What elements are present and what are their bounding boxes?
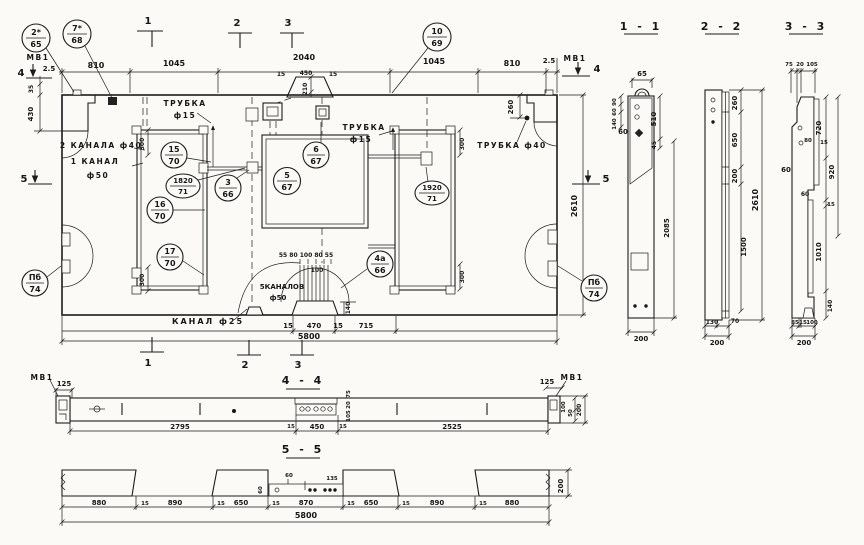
svg-text:71: 71	[427, 195, 437, 203]
svg-text:74: 74	[29, 285, 41, 294]
dim-15-a: 15	[277, 71, 285, 78]
svg-text:2*: 2*	[31, 28, 42, 37]
mark-left-5: 5	[21, 174, 28, 185]
s11-dim-140: 140	[612, 118, 618, 130]
dim-15-b: 15	[329, 71, 337, 78]
s55-dim-60: 60	[285, 473, 293, 479]
balloon-5-67: 5 67	[274, 168, 301, 195]
svg-text:17: 17	[164, 247, 175, 256]
s55-dim-880b: 880	[505, 499, 520, 507]
s22-dim-260: 260	[731, 96, 739, 111]
s44-dim-20: 20	[346, 401, 352, 409]
s55-dim-650b: 650	[364, 499, 379, 507]
trubka40-label: ТРУБКА ф40	[477, 141, 547, 150]
plan-view: 810 1045 2040 1045 810 2.5 2.5 450 15 15…	[18, 16, 610, 371]
svg-text:69: 69	[431, 39, 443, 48]
s44-dim-125l: 125	[57, 380, 72, 388]
s33-dim-920: 920	[828, 165, 836, 180]
s55-dim-15a: 15	[141, 501, 149, 507]
dim-140: 140	[345, 302, 352, 315]
mark-top-1: 1	[145, 16, 152, 27]
balloon-17-70: 17 70	[157, 244, 183, 270]
section-2-2: 2 - 2 260 650 200 1500 2610 130 70 200	[701, 20, 765, 347]
svg-text:74: 74	[588, 290, 600, 299]
mark-bot-1: 1	[145, 358, 152, 369]
section-3-3-title: 3 - 3	[785, 20, 828, 33]
section-4-4-body	[70, 398, 548, 421]
balloon-6-67: 6 67	[303, 142, 329, 168]
dim-300-b: 300	[139, 274, 146, 287]
kanalov5-label: 5КАНАЛОВ	[260, 283, 304, 291]
mark-bot-2: 2	[242, 360, 249, 371]
svg-text:Пб: Пб	[29, 272, 42, 282]
dim-15-c: 15	[283, 322, 293, 330]
svg-text:3: 3	[225, 178, 231, 187]
svg-text:1820: 1820	[173, 177, 193, 185]
s55-dim-60v: 60	[258, 486, 264, 494]
svg-text:Пб: Пб	[588, 277, 601, 287]
balloon-pb-74-right: Пб 74	[581, 275, 607, 301]
s44-dim-75: 75	[346, 390, 352, 398]
svg-text:65: 65	[30, 40, 42, 49]
mark-right-4: 4	[594, 64, 601, 75]
s55-dim-15d: 15	[347, 501, 355, 507]
svg-text:7*: 7*	[72, 24, 83, 33]
s55-dim-870: 870	[299, 499, 314, 507]
s33-dim-85: 85	[791, 320, 799, 326]
dim-260: 260	[507, 100, 515, 115]
balloon-15-70: 15 70	[161, 142, 187, 168]
dim-2610: 2610	[570, 194, 579, 217]
s44-dim-200: 200	[576, 404, 583, 417]
s11-dim-45: 45	[651, 141, 658, 149]
section-2-2-title: 2 - 2	[701, 20, 744, 33]
kanalov5-dia: ф50	[270, 294, 287, 302]
small-fitting	[108, 97, 117, 105]
s22-dim-200b: 200	[710, 339, 725, 347]
mark-left-4: 4	[18, 68, 25, 79]
section-3-3: 3 - 3 75 20 105 60 60 80 15 720 920 15 1…	[781, 20, 840, 347]
svg-text:71: 71	[178, 188, 188, 196]
svg-text:68: 68	[71, 36, 83, 45]
svg-text:70: 70	[164, 259, 176, 268]
s55-dim-890b: 890	[430, 499, 445, 507]
svg-text:67: 67	[310, 157, 321, 166]
balloon-16-70: 16 70	[147, 197, 173, 223]
section-5-5: 5 - 5 880 15 890 15 650 15 870 15 650 15…	[60, 443, 573, 526]
s44-mv1-right: МВ1	[561, 373, 584, 382]
s33-dim-720: 720	[815, 121, 823, 136]
s22-dim-1500: 1500	[740, 237, 748, 257]
dim-channel-100: 100	[311, 267, 324, 274]
s44-dim-2525: 2525	[442, 423, 462, 431]
dim-450: 450	[300, 70, 313, 77]
kanal1-label: 1 КАНАЛ	[71, 157, 120, 166]
s44-dim-105: 105	[346, 410, 352, 422]
s33-dim-105: 105	[806, 62, 818, 68]
svg-text:66: 66	[374, 266, 386, 275]
s33-dim-15r: 15	[827, 202, 835, 208]
dim-430: 430	[27, 107, 35, 122]
svg-text:1920: 1920	[422, 184, 442, 192]
svg-text:66: 66	[222, 190, 234, 199]
s11-dim-510: 510	[650, 112, 658, 127]
dim-1045-right: 1045	[423, 57, 446, 66]
top-conduit-block	[287, 77, 333, 97]
s44-dim-15b: 15	[339, 424, 347, 430]
s55-dim-15f: 15	[479, 501, 487, 507]
trubka15-mid-dia: ф15	[350, 135, 372, 144]
s33-dim-60b: 60	[801, 191, 809, 198]
s44-mv1-left: МВ1	[31, 373, 54, 382]
s11-dim-65: 65	[637, 70, 647, 78]
section-4-4-title: 4 - 4	[282, 374, 325, 387]
s55-dim-15e: 15	[402, 501, 410, 507]
balloon-10-69: 10 69	[423, 23, 451, 51]
kanal25-label: КАНАЛ ф25	[172, 317, 244, 326]
dim-810-left: 810	[88, 61, 105, 70]
s22-dim-70: 70	[731, 318, 739, 325]
mark-top-2: 2	[234, 18, 241, 29]
trubka15-left-dia: ф15	[174, 111, 196, 120]
s44-dim-50: 50	[568, 409, 574, 417]
svg-text:10: 10	[431, 27, 443, 36]
s33-dim-75: 75	[785, 62, 793, 68]
s33-dim-20: 20	[796, 62, 804, 68]
svg-text:4а: 4а	[375, 254, 386, 263]
s44-dim-450: 450	[310, 423, 325, 431]
s33-dim-1010: 1010	[815, 242, 823, 262]
section-1-1-body	[628, 96, 654, 318]
dim-15-d: 15	[333, 322, 343, 330]
dim-470: 470	[307, 322, 322, 330]
s55-dim-890a: 890	[168, 499, 183, 507]
dim-1045-left: 1045	[163, 59, 186, 68]
s55-dim-15c: 15	[272, 501, 280, 507]
balloon-3-66: 3 66	[215, 175, 241, 201]
dim-25-right: 2.5	[543, 57, 556, 65]
mv1-left-label: МВ1	[27, 53, 50, 62]
s55-dim-15b: 15	[217, 501, 225, 507]
svg-text:70: 70	[168, 157, 180, 166]
mark-bot-3: 3	[295, 360, 302, 371]
balloon-1820-71: 1820 71	[166, 174, 200, 198]
trubka15-mid-label: ТРУБКА	[342, 123, 385, 132]
section-1-1: 1 - 1 65 90 60 140 60 510 45 2085 200	[612, 20, 677, 343]
dim-715: 715	[359, 322, 374, 330]
svg-text:15: 15	[168, 145, 180, 154]
panel-drawing: 810 1045 2040 1045 810 2.5 2.5 450 15 15…	[0, 0, 864, 545]
section-1-1-title: 1 - 1	[620, 20, 663, 33]
s33-dim-80: 80	[804, 138, 812, 144]
svg-text:5: 5	[284, 171, 290, 180]
s11-dim-2085: 2085	[663, 218, 671, 238]
s11-dim-60b: 60	[618, 128, 628, 136]
s11-dim-90: 90	[612, 98, 618, 106]
dim-2040: 2040	[293, 53, 316, 62]
s55-dim-5800: 5800	[295, 511, 318, 520]
s33-dim-200: 200	[797, 339, 812, 347]
s33-dim-15m: 15	[820, 140, 828, 146]
balloon-7-68: 7* 68	[63, 20, 91, 48]
balloon-2-65: 2* 65	[22, 24, 50, 52]
dim-210: 210	[302, 83, 309, 96]
svg-text:16: 16	[154, 200, 166, 209]
s55-dim-880a: 880	[92, 499, 107, 507]
right-niche	[390, 126, 455, 294]
balloon-1920-71: 1920 71	[415, 181, 449, 205]
s11-dim-60: 60	[612, 108, 618, 116]
mark-top-3: 3	[285, 18, 292, 29]
kanal1-dia: ф50	[87, 171, 109, 180]
section-2-2-body	[705, 90, 722, 320]
s33-dim-140: 140	[827, 300, 834, 313]
mv1-right-label: МВ1	[564, 54, 587, 63]
dim-810-right: 810	[504, 59, 521, 68]
balloon-4a-66: 4а 66	[367, 251, 393, 277]
s22-dim-2610: 2610	[751, 188, 760, 211]
svg-text:67: 67	[281, 183, 292, 192]
s33-dim-100: 100	[806, 320, 818, 326]
dim-300-d: 300	[459, 271, 466, 284]
section-5-5-title: 5 - 5	[282, 443, 325, 456]
s44-dim-2795: 2795	[170, 423, 190, 431]
s33-dim-60a: 60	[781, 166, 791, 174]
mark-right-5: 5	[603, 174, 610, 185]
s22-dim-650: 650	[731, 133, 739, 148]
s55-dim-650a: 650	[234, 499, 249, 507]
s44-dim-15a: 15	[287, 424, 295, 430]
kanala2-label: 2 КАНАЛА ф40	[60, 141, 142, 150]
s55-dim-135: 135	[326, 476, 338, 482]
blueprint-page: 810 1045 2040 1045 810 2.5 2.5 450 15 15…	[0, 0, 864, 545]
svg-text:6: 6	[313, 145, 319, 154]
balloon-pb-74-left: Пб 74	[22, 270, 48, 296]
dim-35: 35	[28, 85, 35, 93]
s44-dim-125r: 125	[540, 378, 555, 386]
s55-dim-200: 200	[557, 479, 565, 494]
svg-text:70: 70	[154, 212, 166, 221]
dim-channel-row: 55 80 100 80 55	[279, 252, 333, 259]
dim-25-left: 2.5	[43, 65, 56, 73]
trubka15-left-label: ТРУБКА	[163, 99, 206, 108]
dim-5800: 5800	[298, 332, 321, 341]
s22-dim-200: 200	[731, 169, 739, 184]
section-4-4: 4 - 4 МВ1 МВ1 125 2795 15 450 15 2525 75…	[31, 373, 588, 435]
s11-dim-200: 200	[634, 335, 649, 343]
s44-dim-100: 100	[561, 401, 567, 413]
dim-300-c: 300	[459, 138, 466, 151]
s22-dim-130: 130	[706, 319, 719, 326]
